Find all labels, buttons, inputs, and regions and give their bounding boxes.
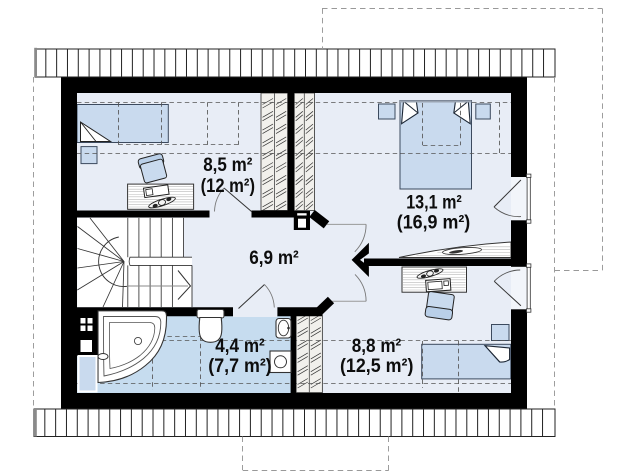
- svg-text:(12 m²): (12 m²): [201, 175, 255, 197]
- svg-text:(16,9 m²): (16,9 m²): [397, 212, 471, 234]
- svg-text:4,4 m²: 4,4 m²: [215, 335, 265, 357]
- svg-text:13,1 m²: 13,1 m²: [406, 192, 462, 214]
- svg-text:8,8 m²: 8,8 m²: [352, 335, 402, 357]
- svg-text:(12,5 m²): (12,5 m²): [340, 355, 414, 377]
- svg-text:8,5 m²: 8,5 m²: [203, 154, 253, 176]
- svg-text:(7,7 m²): (7,7 m²): [208, 355, 272, 377]
- svg-text:6,9 m²: 6,9 m²: [249, 247, 299, 269]
